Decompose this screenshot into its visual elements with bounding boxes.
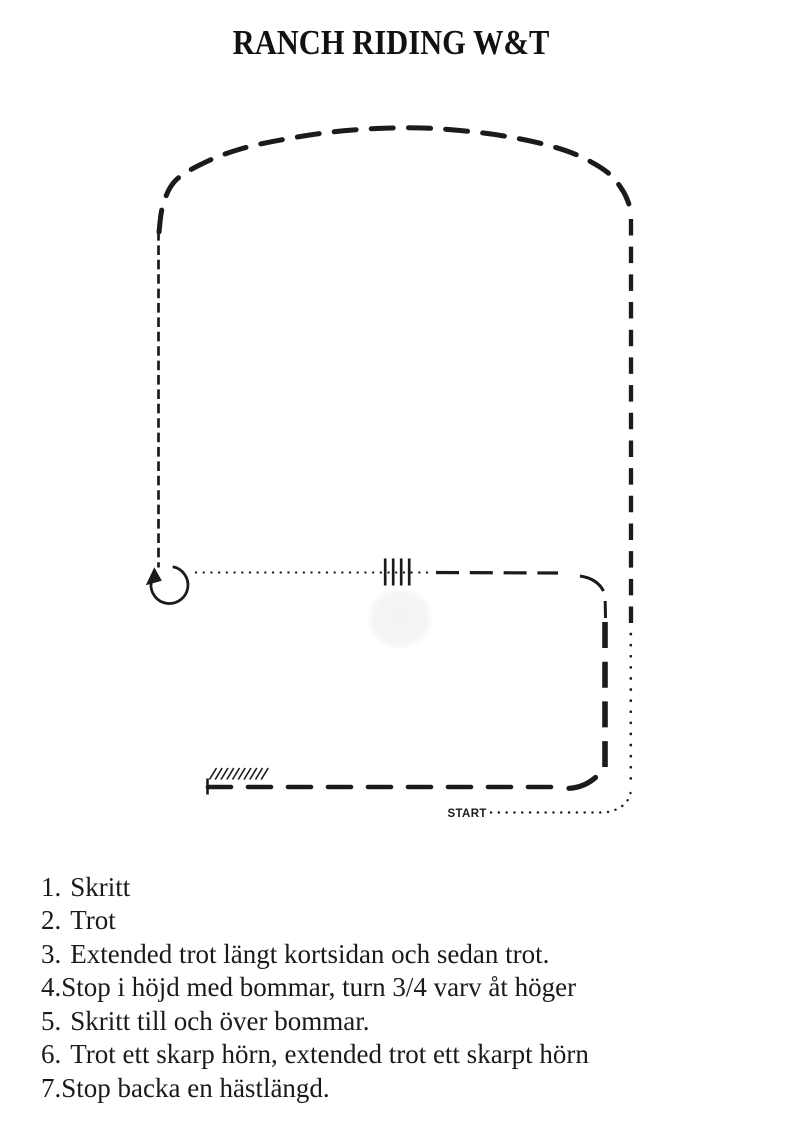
svg-text:START: START (448, 808, 487, 820)
